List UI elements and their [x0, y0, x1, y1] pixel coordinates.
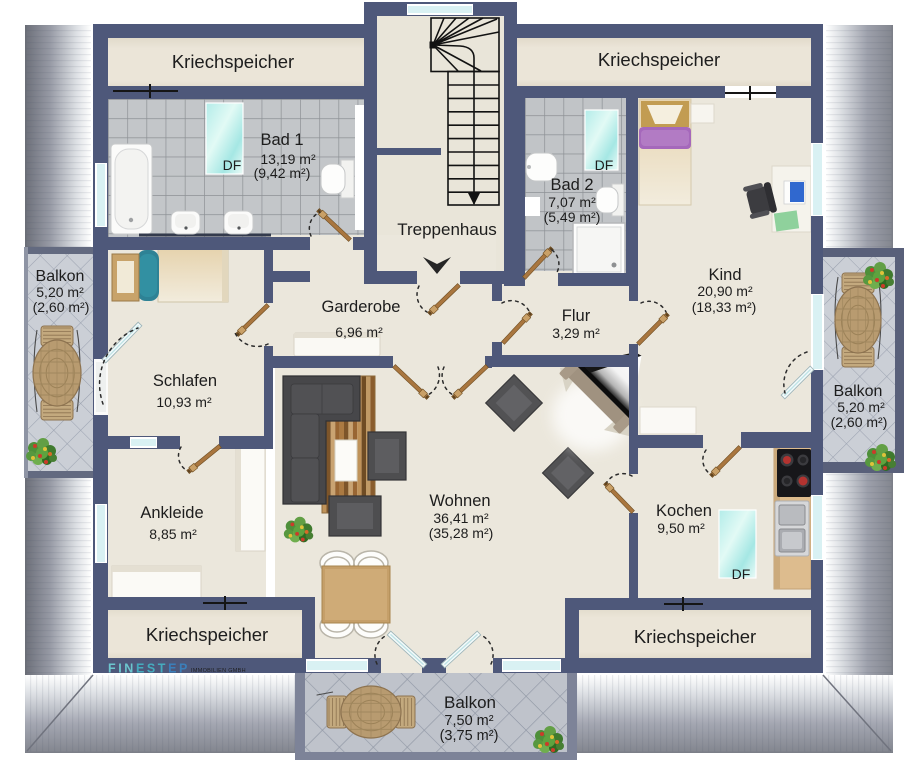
svg-text:Kochen: Kochen: [656, 502, 712, 520]
svg-text:DF: DF: [732, 566, 751, 582]
svg-text:7,07 m²: 7,07 m²: [548, 194, 596, 210]
svg-text:(18,33 m²): (18,33 m²): [692, 299, 757, 315]
svg-text:Ankleide: Ankleide: [140, 504, 203, 522]
svg-text:5,20 m²: 5,20 m²: [837, 399, 885, 415]
svg-text:Kriechspeicher: Kriechspeicher: [146, 624, 268, 645]
svg-text:3,29 m²: 3,29 m²: [552, 325, 600, 341]
svg-text:Schlafen: Schlafen: [153, 372, 217, 390]
svg-text:6,96 m²: 6,96 m²: [335, 324, 383, 340]
svg-text:36,41 m²: 36,41 m²: [433, 510, 489, 526]
svg-text:Treppenhaus: Treppenhaus: [397, 220, 497, 239]
svg-text:5,20 m²: 5,20 m²: [36, 284, 84, 300]
svg-text:Balkon: Balkon: [834, 383, 883, 400]
svg-text:Kind: Kind: [708, 266, 741, 284]
svg-text:20,90 m²: 20,90 m²: [697, 283, 753, 299]
svg-text:Kriechspeicher: Kriechspeicher: [172, 51, 294, 72]
svg-text:(2,60 m²): (2,60 m²): [831, 414, 888, 430]
svg-text:(2,60 m²): (2,60 m²): [33, 299, 90, 315]
svg-text:10,93 m²: 10,93 m²: [156, 394, 212, 410]
svg-text:IMMOBILIEN GMBH: IMMOBILIEN GMBH: [191, 668, 246, 674]
svg-text:Bad 2: Bad 2: [550, 176, 593, 194]
svg-text:DF: DF: [223, 157, 242, 173]
svg-text:Balkon: Balkon: [36, 268, 85, 285]
svg-text:(9,42 m²): (9,42 m²): [254, 165, 311, 181]
svg-text:9,50 m²: 9,50 m²: [657, 520, 705, 536]
svg-text:7,50 m²: 7,50 m²: [444, 713, 493, 729]
svg-text:Kriechspeicher: Kriechspeicher: [598, 49, 720, 70]
svg-text:Bad 1: Bad 1: [260, 131, 303, 149]
svg-text:Balkon: Balkon: [444, 693, 496, 712]
svg-text:FINESTEP: FINESTEP: [108, 662, 190, 676]
svg-text:(5,49 m²): (5,49 m²): [544, 209, 601, 225]
svg-text:(3,75 m²): (3,75 m²): [440, 728, 499, 744]
svg-text:Flur: Flur: [562, 307, 591, 325]
svg-text:8,85 m²: 8,85 m²: [149, 526, 197, 542]
svg-text:DF: DF: [595, 157, 614, 173]
svg-text:Garderobe: Garderobe: [322, 298, 401, 316]
svg-text:(35,28 m²): (35,28 m²): [429, 525, 494, 541]
svg-text:Kriechspeicher: Kriechspeicher: [634, 626, 756, 647]
svg-text:Wohnen: Wohnen: [429, 492, 490, 510]
